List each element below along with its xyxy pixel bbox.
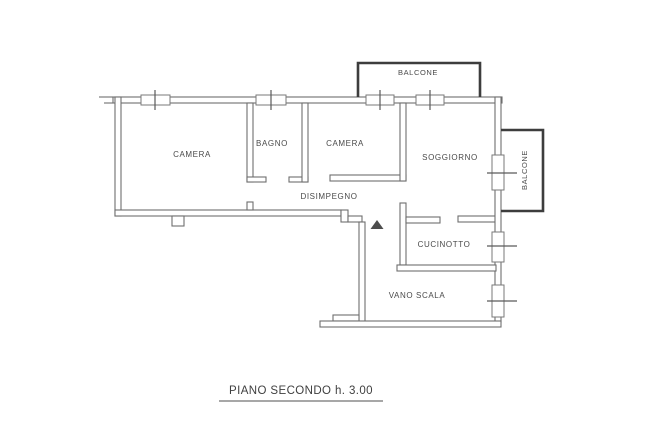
label-disimpegno: DISIMPEGNO xyxy=(300,192,357,201)
window-frame xyxy=(492,232,504,262)
wall-cucinotto-top-right xyxy=(458,216,496,222)
label-vano-scala: VANO SCALA xyxy=(389,291,446,300)
label-bagno: BAGNO xyxy=(256,139,288,148)
window-vano-scala xyxy=(487,285,517,317)
window-bagno xyxy=(256,90,286,110)
label-cucinotto: CUCINOTTO xyxy=(418,240,471,249)
wall-vano-scala-foot xyxy=(333,315,359,321)
floor-plan-page: CAMERA BAGNO CAMERA SOGGIORNO DISIMPEGNO… xyxy=(0,0,655,448)
wall-cucinotto-top-left xyxy=(406,217,440,223)
pillar-exterior xyxy=(172,216,184,226)
balcony-door-soggiorno xyxy=(416,90,444,110)
wall-camera1-bagno xyxy=(247,103,253,182)
wall-cucinotto-bottom xyxy=(397,265,496,271)
window-symbols xyxy=(141,90,517,317)
label-balcone-top: BALCONE xyxy=(398,68,438,77)
balcony-door-camera2 xyxy=(366,90,394,110)
wall-vano-scala-left xyxy=(359,222,365,322)
caption-text: PIANO SECONDO h. 3.00 xyxy=(229,385,373,397)
wall-stub-camera1-door xyxy=(247,202,253,210)
caption-block: PIANO SECONDO h. 3.00 xyxy=(219,385,383,401)
window-cucinotto xyxy=(487,232,517,262)
wall-camera2-soggiorno xyxy=(400,103,406,181)
wall-cucinotto-left xyxy=(400,203,406,265)
wall-left xyxy=(115,97,121,216)
wall-entry-left xyxy=(348,216,362,222)
label-camera-2: CAMERA xyxy=(326,139,364,148)
label-soggiorno: SOGGIORNO xyxy=(422,153,478,162)
balcony-door-right xyxy=(487,155,517,190)
floor-plan-drawing: CAMERA BAGNO CAMERA SOGGIORNO DISIMPEGNO… xyxy=(0,0,655,448)
balconies xyxy=(358,63,543,211)
window-camera1 xyxy=(141,90,170,110)
wall-camera2-bottom xyxy=(330,175,406,181)
wall-jog-step xyxy=(341,210,348,222)
wall-bagno-door-foot-left xyxy=(247,177,266,182)
label-camera-1: CAMERA xyxy=(173,150,211,159)
label-balcone-right: BALCONE xyxy=(520,150,529,190)
wall-bagno-camera2 xyxy=(302,103,308,182)
entry-door-marker-icon xyxy=(371,220,384,229)
wall-vano-scala-bottom xyxy=(320,321,501,327)
wall-disimpegno-bottom xyxy=(115,210,341,216)
